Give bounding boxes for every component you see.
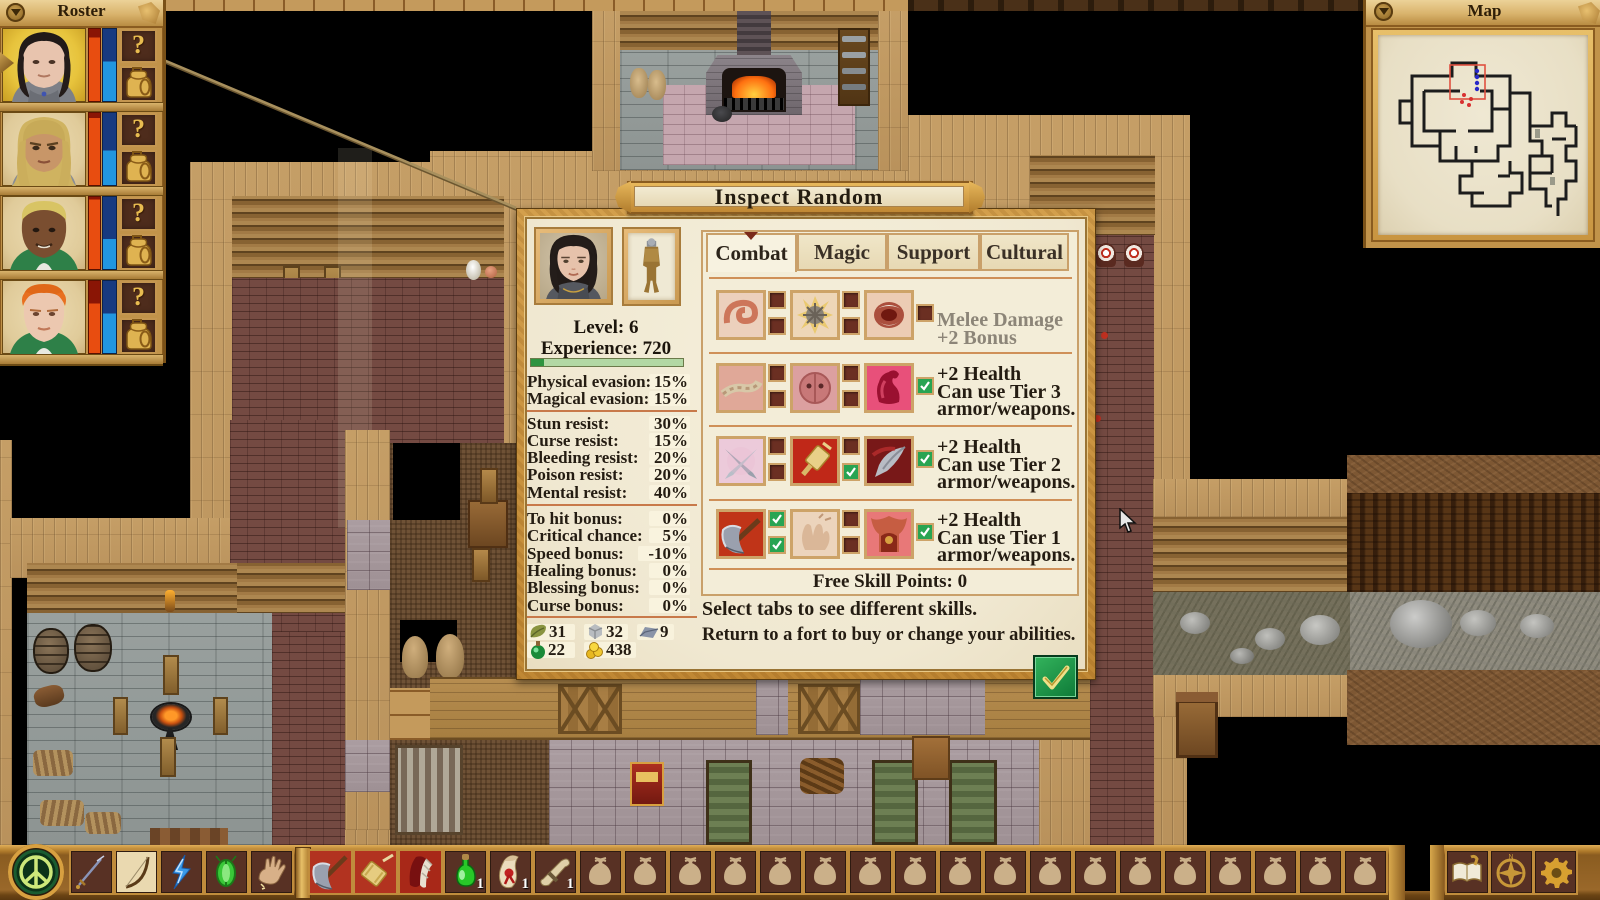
svg-text:N: N bbox=[1508, 854, 1513, 861]
